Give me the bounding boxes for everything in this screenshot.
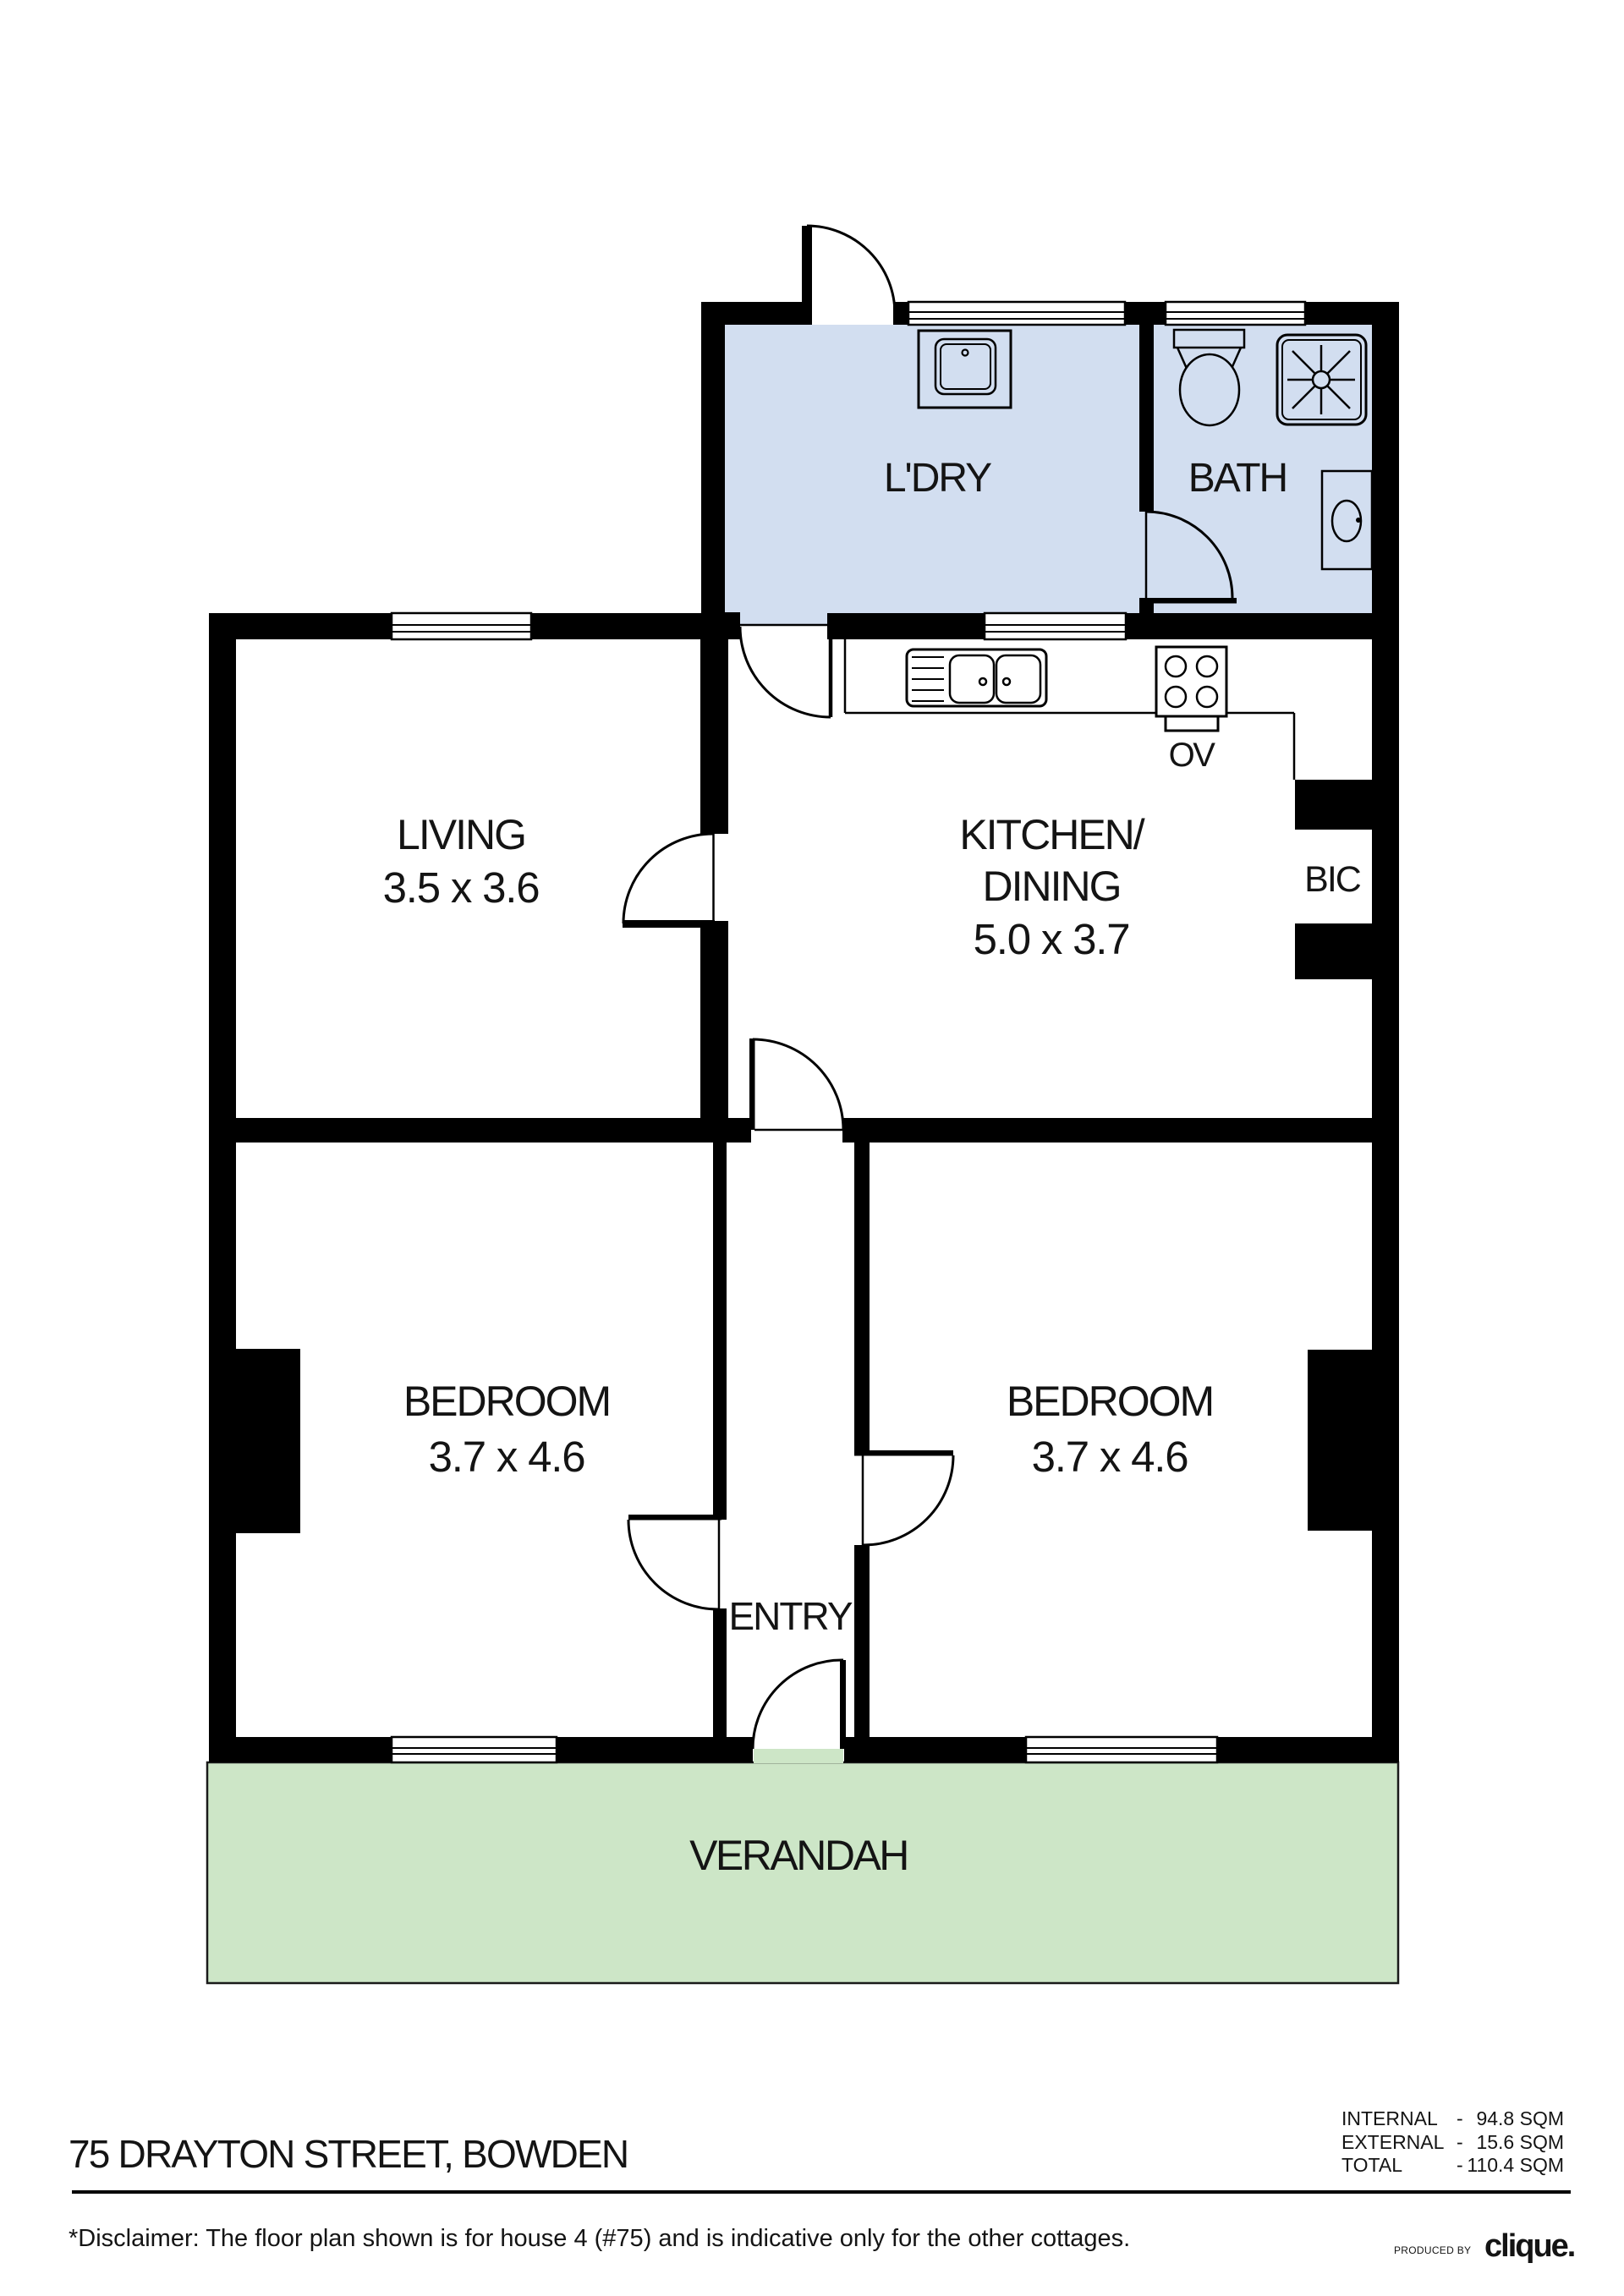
- svg-text:KITCHEN/: KITCHEN/: [959, 811, 1144, 858]
- svg-text:3.7 x 4.6: 3.7 x 4.6: [1032, 1433, 1188, 1481]
- svg-text:BEDROOM: BEDROOM: [1007, 1378, 1213, 1425]
- svg-text:BATH: BATH: [1188, 456, 1287, 501]
- svg-text:ENTRY: ENTRY: [728, 1594, 852, 1638]
- svg-text:3.7 x 4.6: 3.7 x 4.6: [429, 1433, 585, 1481]
- svg-text:5.0 x 3.7: 5.0 x 3.7: [974, 915, 1130, 963]
- svg-text:15.6 SQM: 15.6 SQM: [1476, 2131, 1564, 2153]
- svg-text:clique.: clique.: [1484, 2228, 1574, 2264]
- svg-text:VERANDAH: VERANDAH: [689, 1832, 908, 1879]
- svg-text:75 DRAYTON STREET, BOWDEN: 75 DRAYTON STREET, BOWDEN: [69, 2132, 628, 2176]
- svg-text:DINING: DINING: [983, 863, 1121, 910]
- svg-text:LIVING: LIVING: [397, 811, 525, 858]
- svg-text:PRODUCED BY: PRODUCED BY: [1394, 2244, 1471, 2256]
- svg-text:EXTERNAL: EXTERNAL: [1341, 2131, 1445, 2153]
- svg-text:BIC: BIC: [1304, 859, 1361, 900]
- svg-text:3.5 x 3.6: 3.5 x 3.6: [383, 863, 540, 912]
- svg-text:-: -: [1457, 2154, 1463, 2176]
- svg-text:BEDROOM: BEDROOM: [403, 1378, 610, 1425]
- svg-text:94.8 SQM: 94.8 SQM: [1476, 2107, 1564, 2129]
- svg-text:-: -: [1457, 2131, 1463, 2153]
- svg-text:OV: OV: [1169, 737, 1216, 774]
- svg-text:-: -: [1457, 2107, 1463, 2129]
- svg-text:TOTAL: TOTAL: [1341, 2154, 1402, 2176]
- svg-text:INTERNAL: INTERNAL: [1341, 2107, 1438, 2129]
- svg-text:L'DRY: L'DRY: [884, 456, 991, 501]
- svg-text:110.4 SQM: 110.4 SQM: [1467, 2154, 1564, 2176]
- svg-text:*Disclaimer: The floor plan sh: *Disclaimer: The floor plan shown is for…: [69, 2225, 1130, 2252]
